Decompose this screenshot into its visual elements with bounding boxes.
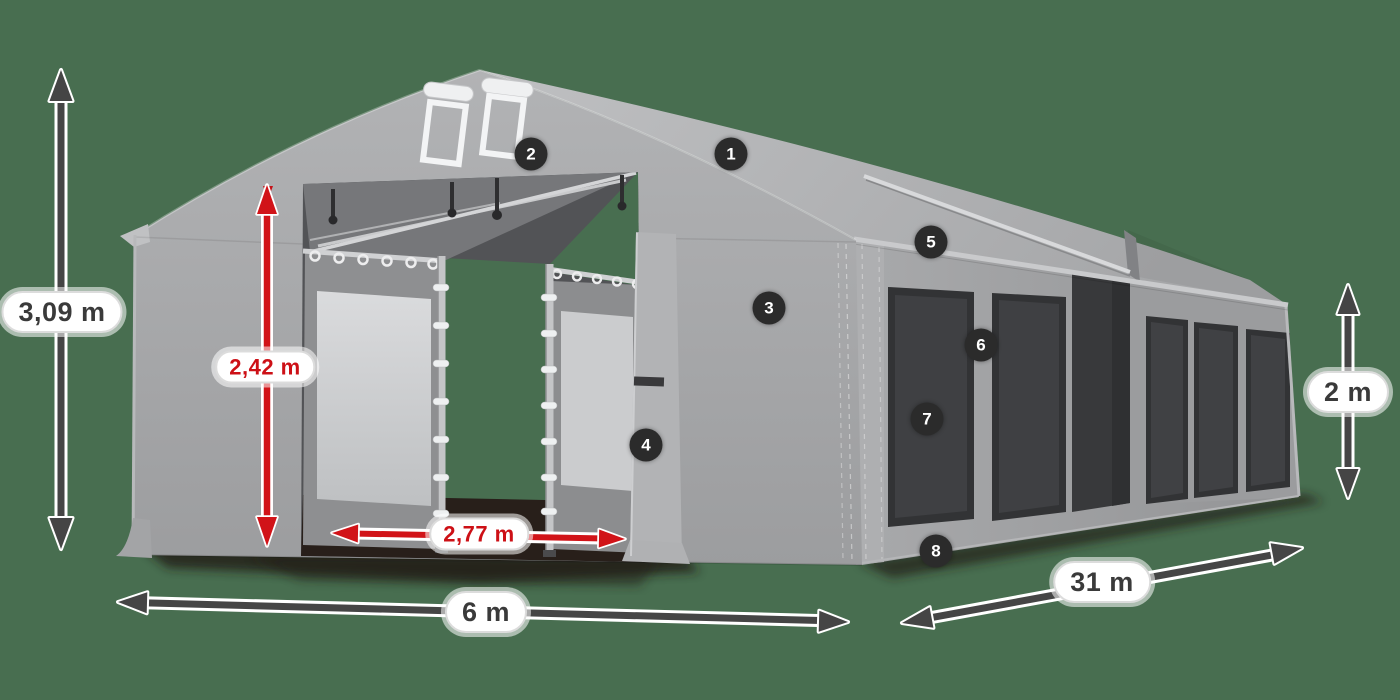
right-door-panel bbox=[547, 269, 645, 553]
side-window-2 bbox=[992, 293, 1066, 521]
feature-badge-7: 7 bbox=[911, 403, 944, 436]
dimension-label-width: 6 m bbox=[445, 591, 527, 633]
dimension-label-inner-height: 2,42 m bbox=[215, 351, 315, 384]
left-door-panel bbox=[303, 249, 445, 549]
feature-badge-6: 6 bbox=[965, 329, 998, 362]
side-window-4 bbox=[1194, 322, 1238, 498]
door-opening bbox=[295, 165, 650, 565]
dimension-label-side-height: 2 m bbox=[1307, 371, 1389, 413]
feature-badge-3: 3 bbox=[753, 292, 786, 325]
feature-badge-2: 2 bbox=[515, 138, 548, 171]
feature-badge-8: 8 bbox=[920, 535, 953, 568]
see-through-center bbox=[444, 258, 550, 512]
feature-badge-4: 4 bbox=[630, 429, 663, 462]
dimension-label-total-height: 3,09 m bbox=[1, 291, 122, 333]
tent-illustration bbox=[0, 0, 1400, 700]
dimension-label-door-width: 2,77 m bbox=[429, 518, 529, 551]
side-window-3 bbox=[1146, 316, 1188, 504]
side-window-5 bbox=[1246, 329, 1290, 492]
feature-badge-5: 5 bbox=[915, 226, 948, 259]
dimension-label-length: 31 m bbox=[1053, 561, 1151, 603]
tent-dimension-diagram: 3,09 m 2,42 m 2,77 m 6 m 31 m 2 m 1 2 3 … bbox=[0, 0, 1400, 700]
feature-badge-1: 1 bbox=[715, 138, 748, 171]
